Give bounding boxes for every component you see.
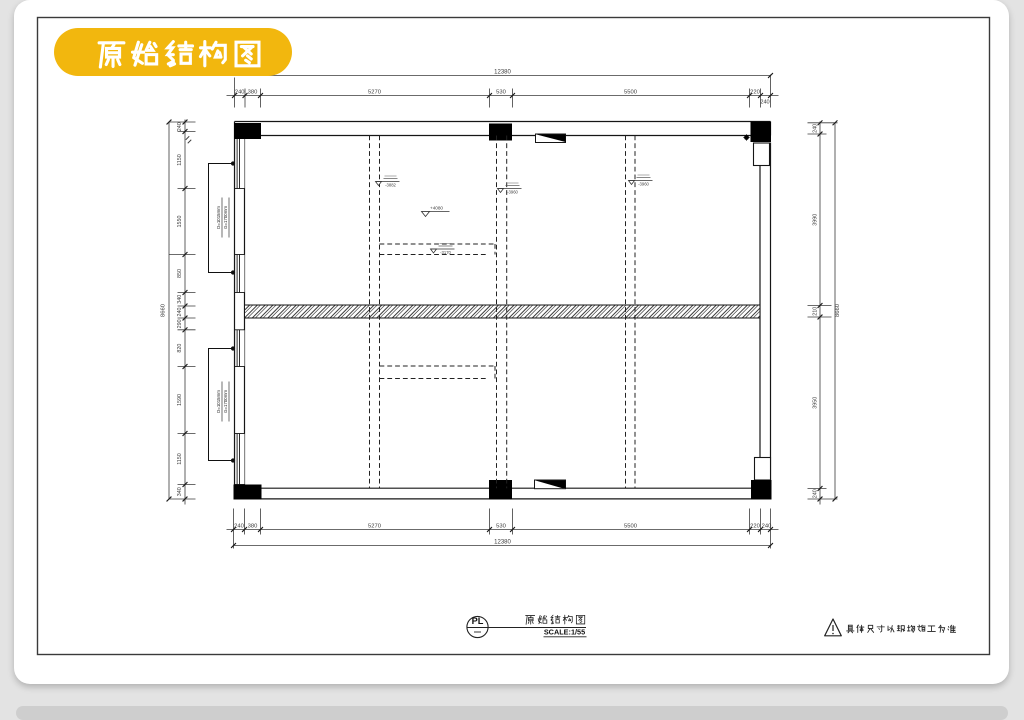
- svg-text:5270: 5270: [368, 90, 381, 96]
- svg-text:SCALE:1/55: SCALE:1/55: [544, 628, 585, 637]
- svg-text:8660: 8660: [161, 304, 167, 317]
- svg-text:-3170: -3170: [440, 250, 451, 255]
- svg-text:220: 220: [750, 90, 760, 96]
- svg-text:850: 850: [177, 269, 183, 278]
- svg-text:12380: 12380: [494, 69, 511, 75]
- svg-text:D=1015mm: D=1015mm: [216, 390, 221, 413]
- svg-text:G=1700mm: G=1700mm: [223, 390, 228, 413]
- svg-text:G=1700mm: G=1700mm: [223, 206, 228, 229]
- svg-text:210: 210: [813, 307, 819, 316]
- svg-text:290: 290: [177, 319, 183, 328]
- svg-text:220: 220: [750, 523, 760, 529]
- svg-text:1150: 1150: [177, 453, 183, 465]
- svg-text:5500: 5500: [624, 90, 637, 96]
- svg-text:PL: PL: [472, 616, 484, 626]
- svg-text:820: 820: [177, 344, 183, 353]
- svg-text:240: 240: [177, 122, 183, 131]
- svg-text:340: 340: [177, 295, 183, 304]
- svg-text:240: 240: [760, 100, 769, 106]
- svg-text:240: 240: [813, 489, 819, 498]
- svg-text:12380: 12380: [494, 540, 511, 546]
- svg-text:530: 530: [496, 90, 506, 96]
- svg-text:380: 380: [248, 90, 258, 96]
- svg-text:240: 240: [762, 523, 772, 529]
- svg-text:1590: 1590: [177, 394, 183, 406]
- svg-text:240: 240: [235, 90, 245, 96]
- svg-text:8660: 8660: [835, 304, 841, 317]
- svg-text:340: 340: [177, 487, 183, 496]
- svg-text:380: 380: [248, 523, 258, 529]
- svg-text:530: 530: [496, 523, 506, 529]
- svg-text:3950: 3950: [813, 397, 819, 409]
- svg-text:D=1015mm: D=1015mm: [216, 206, 221, 229]
- svg-text:-3882: -3882: [385, 183, 396, 188]
- svg-text:-3960: -3960: [638, 182, 649, 187]
- svg-text:-3960: -3960: [507, 190, 518, 195]
- svg-text:5270: 5270: [368, 523, 381, 529]
- svg-text:1150: 1150: [177, 154, 183, 166]
- svg-text:3990: 3990: [813, 214, 819, 226]
- svg-text:240: 240: [234, 523, 244, 529]
- svg-text:240: 240: [813, 124, 819, 133]
- svg-text:5500: 5500: [624, 523, 637, 529]
- svg-text:1550: 1550: [177, 216, 183, 228]
- svg-text:+4080: +4080: [430, 206, 443, 211]
- svg-text:240: 240: [177, 308, 183, 317]
